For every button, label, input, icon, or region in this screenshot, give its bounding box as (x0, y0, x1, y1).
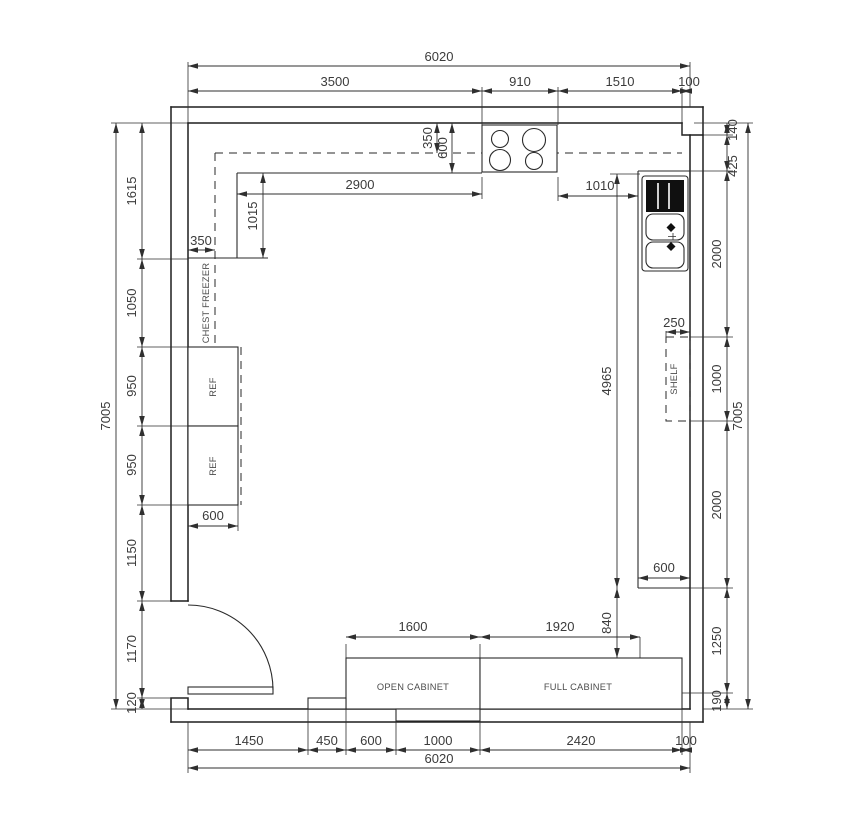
dim-left-1: 1615 (124, 177, 139, 206)
floor-plan-canvas: CHEST FREEZER REF REF SHELF OPEN CABINET (0, 0, 854, 818)
dim-left-3: 950 (124, 375, 139, 397)
dim-right-1: 140 (725, 119, 740, 141)
dim-bottom-5: 2420 (567, 733, 596, 748)
wall-opening (396, 709, 480, 721)
walls (171, 107, 703, 722)
refrigerators: REF REF (188, 347, 238, 505)
dim-right-3: 2000 (709, 240, 724, 269)
dim-right-total: 7005 (730, 402, 745, 431)
dim-bottom-2: 450 (316, 733, 338, 748)
sink-symbol (642, 176, 688, 271)
upper-cabinet-dashed-line (215, 153, 682, 505)
ref-upper-label: REF (208, 377, 218, 396)
dim-shelf-250: 250 (663, 315, 685, 330)
dim-right-4: 1000 (709, 365, 724, 394)
chest-freezer: CHEST FREEZER (188, 263, 238, 347)
shelf-label: SHELF (669, 363, 679, 394)
dim-left-7: 120 (124, 692, 139, 714)
door-swing (188, 605, 273, 694)
dim-gap-1015: 1015 (245, 202, 260, 231)
dim-bottom-6: 100 (675, 733, 697, 748)
dim-top-2: 910 (509, 74, 531, 89)
dim-upper-350: 350 (420, 127, 435, 149)
door-arc (188, 605, 273, 690)
dim-full-1920: 1920 (546, 619, 575, 634)
dim-bottom-total: 6020 (425, 751, 454, 766)
dim-top-total: 6020 (425, 49, 454, 64)
dim-right-600: 600 (653, 560, 675, 575)
dim-top-4: 100 (678, 74, 700, 89)
dim-freezer-350: 350 (190, 233, 212, 248)
dim-left-5: 1150 (124, 539, 139, 567)
dim-right-4965: 4965 (599, 367, 614, 396)
dim-open-1600: 1600 (399, 619, 428, 634)
dim-bottom-4: 1000 (424, 733, 453, 748)
door-leaf (188, 687, 273, 694)
dim-stove-1010: 1010 (586, 178, 615, 193)
ref-lower-label: REF (208, 456, 218, 475)
dim-right-6: 1250 (709, 627, 724, 656)
dim-top-3: 1510 (606, 74, 635, 89)
dim-left-total: 7005 (98, 402, 113, 431)
open-cabinet-label: OPEN CABINET (377, 682, 449, 692)
dim-right-5: 2000 (709, 491, 724, 520)
shelf: SHELF (666, 337, 690, 421)
kitchen-floor-plan: CHEST FREEZER REF REF SHELF OPEN CABINET (0, 0, 854, 818)
dim-left-6: 1170 (124, 635, 139, 663)
dim-counter-2900: 2900 (346, 177, 375, 192)
dim-top-1: 3500 (321, 74, 350, 89)
dim-ref-600: 600 (202, 508, 224, 523)
dim-bottom-3: 600 (360, 733, 382, 748)
dim-counter-600: 600 (435, 137, 450, 159)
base-cabinets: OPEN CABINET FULL CABINET (308, 658, 682, 721)
dim-left-4: 950 (124, 454, 139, 476)
dim-left-2: 1050 (124, 289, 139, 318)
dim-right-7: 190 (709, 690, 724, 712)
dim-right-2: 425 (725, 155, 740, 177)
chest-freezer-label: CHEST FREEZER (201, 263, 211, 344)
full-cabinet-label: FULL CABINET (544, 682, 612, 692)
stove-symbol (482, 125, 557, 172)
dim-bottom-1: 1450 (235, 733, 264, 748)
wall-pier (308, 698, 346, 709)
dim-gap-840: 840 (599, 612, 614, 634)
